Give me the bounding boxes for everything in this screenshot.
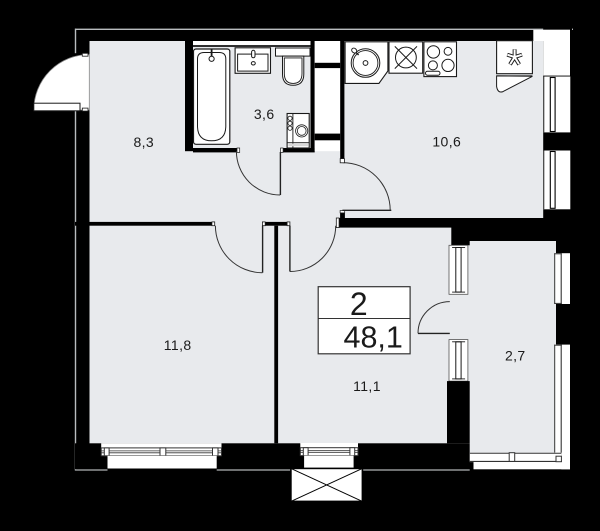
svg-text:48,1: 48,1 (344, 320, 403, 354)
svg-text:10,6: 10,6 (432, 134, 461, 150)
svg-text:8,3: 8,3 (133, 134, 154, 150)
svg-text:11,8: 11,8 (164, 337, 192, 353)
svg-text:2,7: 2,7 (505, 348, 526, 364)
svg-text:3,6: 3,6 (254, 106, 275, 122)
svg-text:11,1: 11,1 (353, 378, 381, 394)
svg-text:2: 2 (350, 286, 368, 322)
